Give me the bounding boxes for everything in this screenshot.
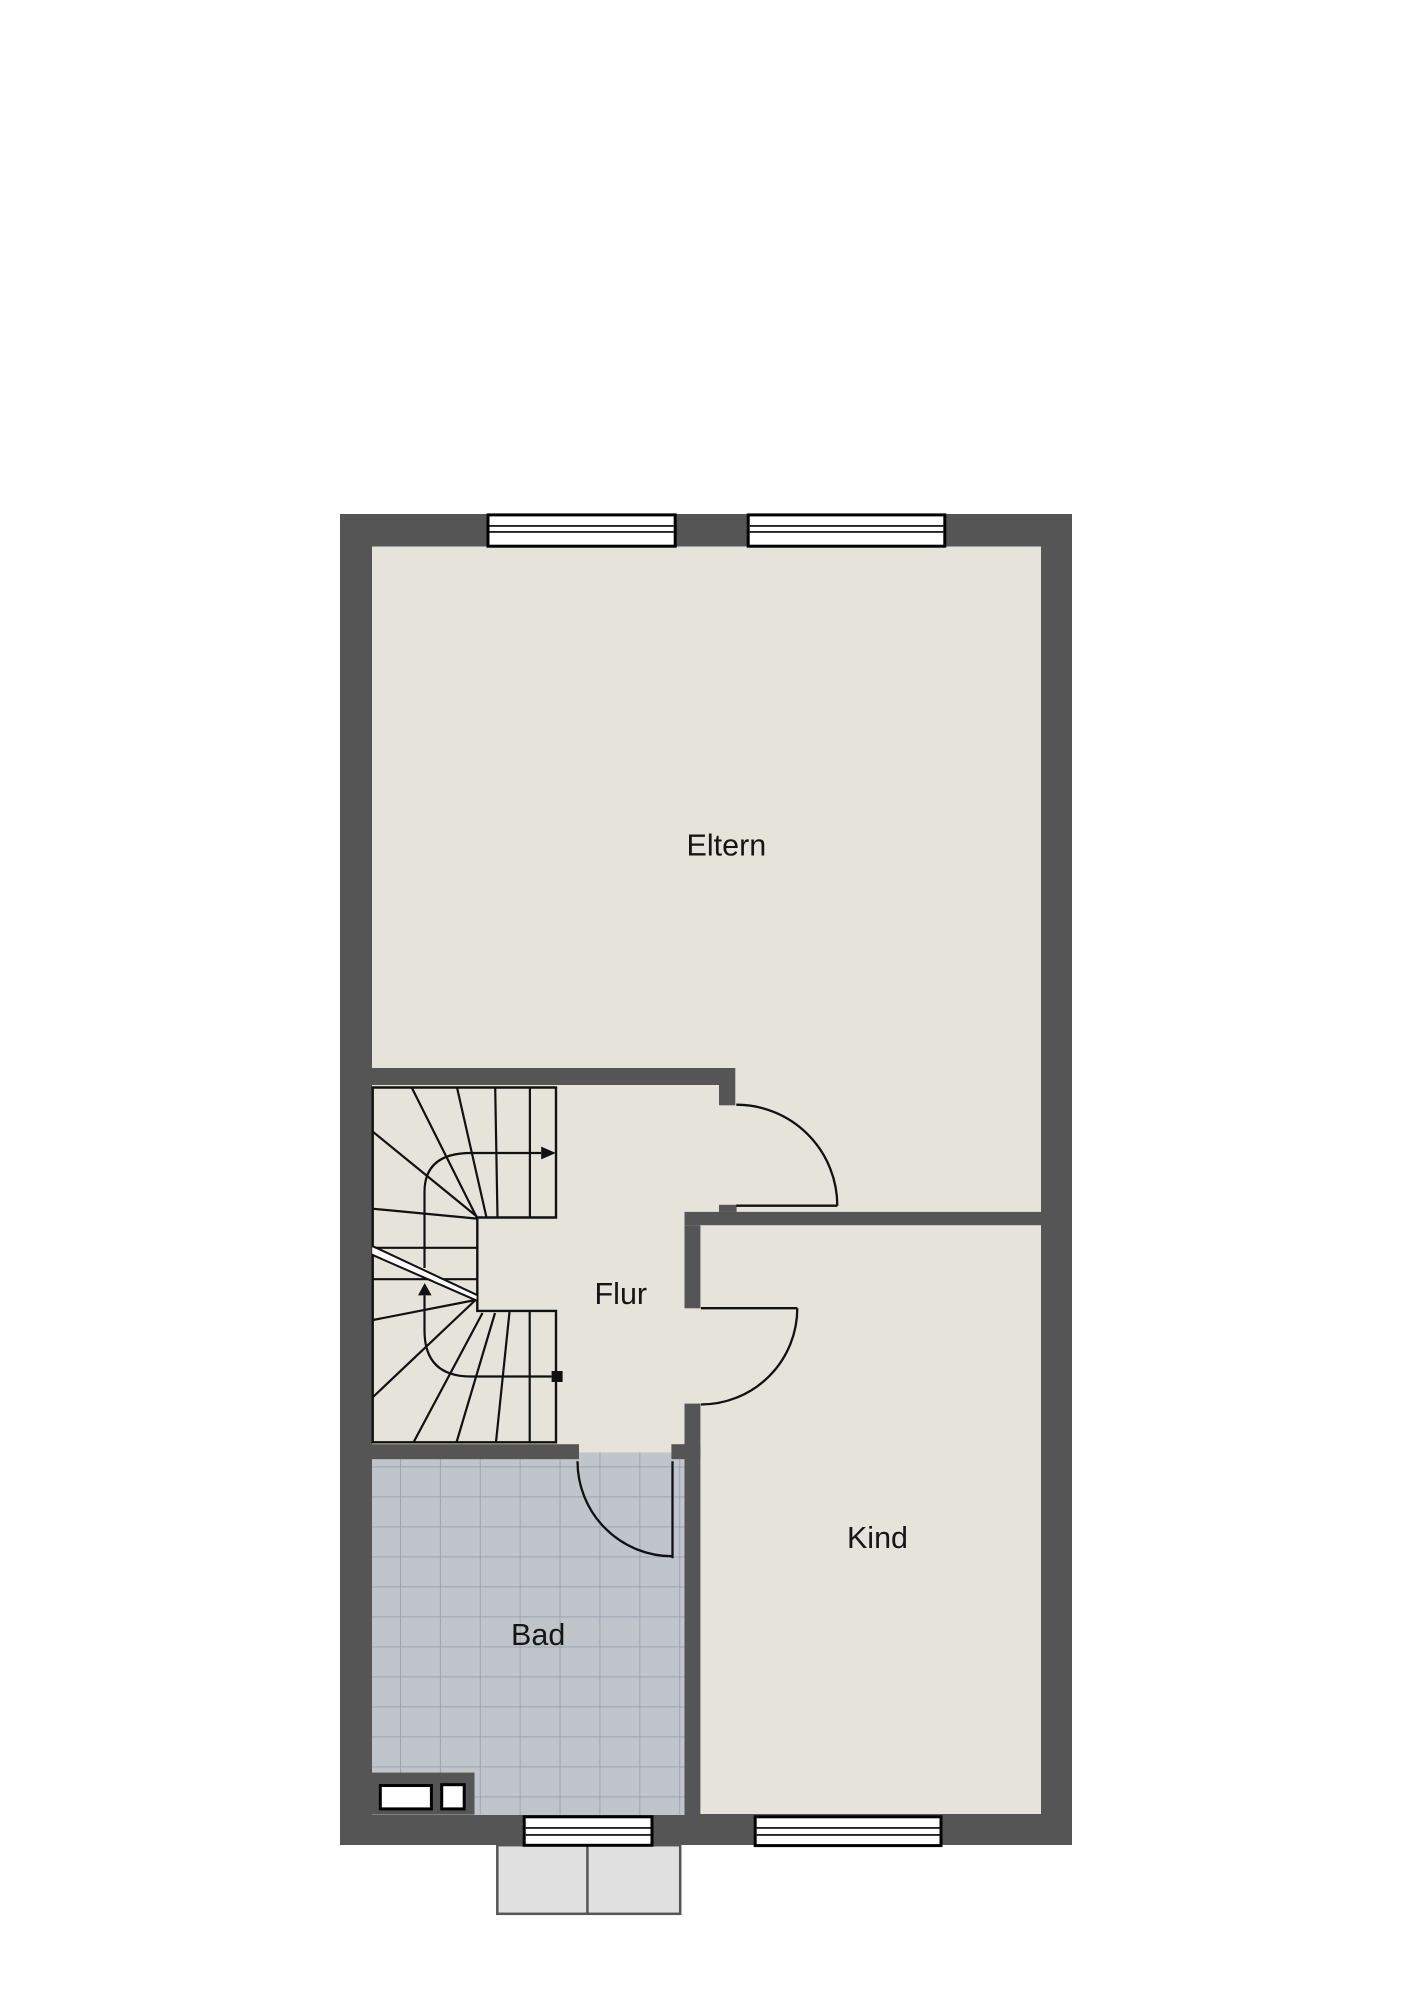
svg-text:Kind: Kind	[847, 1521, 908, 1555]
svg-text:Eltern: Eltern	[687, 828, 767, 862]
svg-text:Bad: Bad	[511, 1618, 565, 1652]
svg-text:Flur: Flur	[595, 1277, 648, 1311]
